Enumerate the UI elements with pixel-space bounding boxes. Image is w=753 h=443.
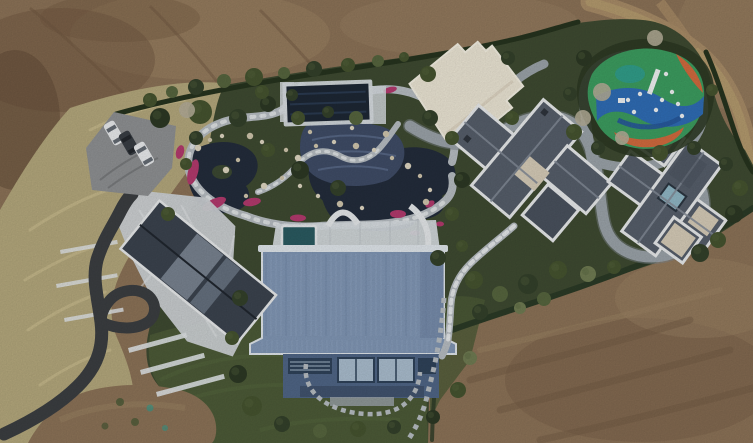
aerial-photo-canvas <box>0 0 753 443</box>
aerial-photo <box>0 0 753 443</box>
photo-grain <box>0 0 753 443</box>
